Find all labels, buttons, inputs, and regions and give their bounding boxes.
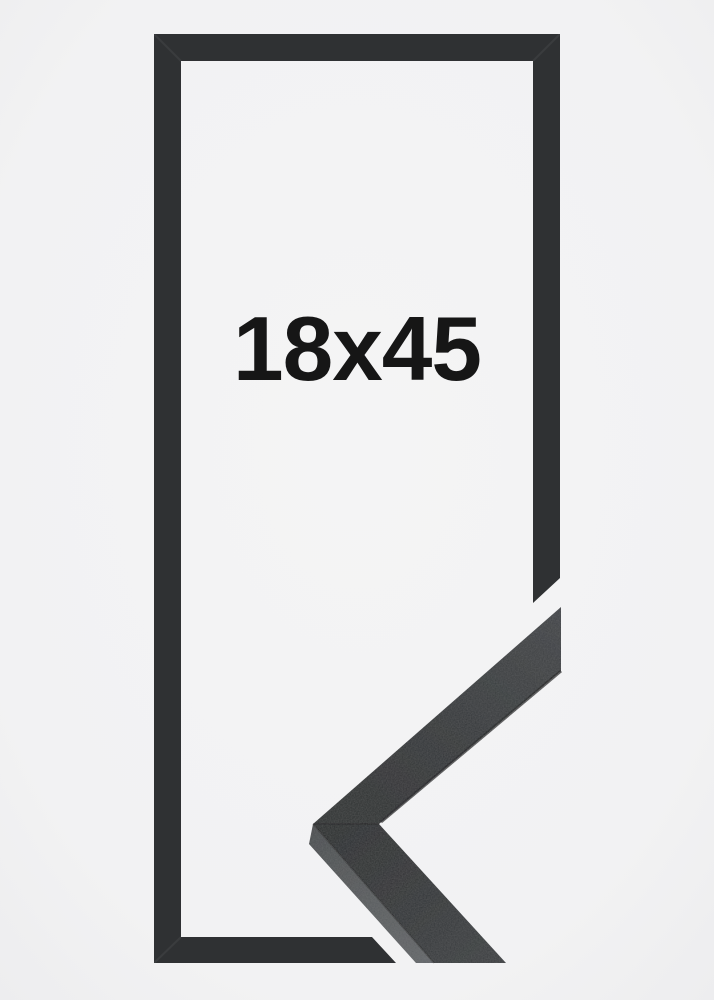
size-label: 18x45 [233,299,481,400]
product-image: 18x45 [0,0,714,1000]
frame-product-graphic: 18x45 [0,0,714,1000]
